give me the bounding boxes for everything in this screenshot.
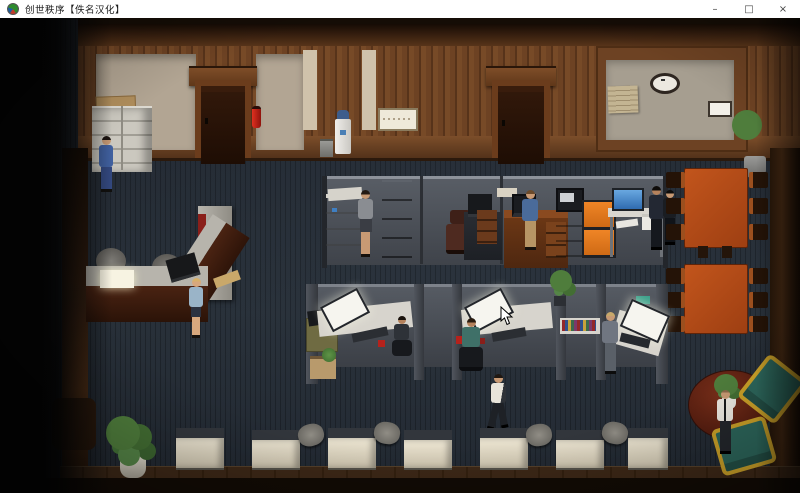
table2-chair-l1[interactable] bbox=[666, 268, 685, 284]
bottom-desk-top-2 bbox=[252, 430, 300, 440]
person-head bbox=[526, 190, 535, 199]
plant-topright bbox=[732, 110, 762, 140]
bottom-desk-4[interactable] bbox=[404, 440, 452, 470]
person-head bbox=[606, 312, 615, 321]
maximize-icon: □ bbox=[744, 4, 753, 15]
table1-chair-l2[interactable] bbox=[666, 198, 685, 214]
crown-molding bbox=[78, 24, 800, 46]
table1-chair-r2[interactable] bbox=[749, 198, 768, 214]
dark-file-cabinet[interactable] bbox=[382, 180, 412, 260]
wall-pilaster-2 bbox=[362, 50, 376, 130]
wall-sign[interactable] bbox=[708, 101, 732, 117]
title-bar: 创世秩序【佚名汉化】 – □ × bbox=[0, 0, 800, 18]
partition-divider-1 bbox=[420, 176, 423, 264]
person-gray-suit[interactable] bbox=[598, 312, 622, 376]
table1-endchair-2 bbox=[722, 246, 732, 258]
clock-hands bbox=[661, 79, 665, 81]
table1-chair-l3[interactable] bbox=[666, 224, 685, 240]
person-head bbox=[361, 190, 370, 199]
bottom-desk-top-4 bbox=[404, 430, 452, 440]
bottom-desk-3[interactable] bbox=[328, 438, 376, 470]
door-right-handle[interactable] bbox=[502, 120, 505, 126]
bottom-desk-top-5 bbox=[480, 428, 528, 438]
person-head bbox=[721, 390, 730, 399]
meeting-table-2[interactable] bbox=[684, 264, 748, 334]
bottom-chair-3[interactable] bbox=[525, 422, 554, 447]
wood-drawer-cabinet bbox=[477, 210, 497, 244]
person-leg-right bbox=[496, 403, 508, 429]
table2-chair-l2[interactable] bbox=[666, 292, 685, 308]
person-legs bbox=[101, 167, 112, 192]
wall-clock[interactable] bbox=[650, 73, 680, 94]
person-torso bbox=[717, 399, 733, 421]
photocopier-display bbox=[332, 208, 337, 212]
bottom-desk-1[interactable] bbox=[176, 438, 224, 470]
notice-board[interactable] bbox=[378, 108, 418, 131]
bottom-desk-top-7 bbox=[628, 428, 668, 438]
person-chair bbox=[459, 347, 483, 371]
person-torso bbox=[462, 327, 480, 347]
person-torso bbox=[394, 324, 409, 340]
partition-plant bbox=[550, 270, 572, 292]
bottom-desk-7[interactable] bbox=[628, 438, 668, 470]
wall-map[interactable] bbox=[608, 85, 639, 113]
plant-pot-bottomleft bbox=[120, 456, 146, 478]
table2-chair-r3[interactable] bbox=[749, 316, 768, 332]
person-head bbox=[467, 318, 476, 327]
door-left[interactable] bbox=[201, 86, 245, 164]
person-sitting-teal[interactable] bbox=[454, 318, 488, 376]
table1-chair-r3[interactable] bbox=[749, 224, 768, 240]
table2-chair-r2[interactable] bbox=[749, 292, 768, 308]
person-legs bbox=[361, 232, 370, 257]
person-torso bbox=[602, 321, 618, 343]
meeting-table-1[interactable] bbox=[684, 168, 748, 248]
person-torso bbox=[522, 199, 538, 221]
dark-armchair-corner bbox=[52, 398, 96, 450]
person-blonde-visitor[interactable] bbox=[184, 278, 208, 338]
table1-endchair-1 bbox=[698, 246, 708, 258]
person-head bbox=[494, 374, 503, 383]
wall-section-beige-mid bbox=[256, 54, 304, 150]
bottom-desk-6[interactable] bbox=[556, 440, 604, 470]
person-torso bbox=[99, 145, 113, 167]
table1-chair-l1[interactable] bbox=[666, 172, 685, 188]
table1-chair-r1[interactable] bbox=[749, 172, 768, 188]
person-legs bbox=[605, 343, 616, 374]
books-row bbox=[562, 320, 596, 331]
app-window: 创世秩序【佚名汉化】 – □ × bbox=[0, 0, 800, 493]
close-icon: × bbox=[779, 4, 787, 15]
wall-pilaster-1 bbox=[303, 50, 317, 130]
bottom-desk-top-6 bbox=[556, 430, 604, 440]
file-cabinet-divider bbox=[121, 106, 123, 170]
person-walking[interactable] bbox=[486, 374, 510, 430]
desk-plant-bayA bbox=[322, 348, 336, 362]
person-head bbox=[102, 136, 111, 145]
reception-paper[interactable] bbox=[100, 270, 134, 288]
water-cooler-label bbox=[340, 130, 346, 135]
red-mug-bayA bbox=[378, 340, 385, 347]
person-copier-woman[interactable] bbox=[352, 190, 378, 260]
bottom-desk-2[interactable] bbox=[252, 440, 300, 470]
bottom-desk-5[interactable] bbox=[480, 438, 528, 470]
white-desk-leg-l bbox=[610, 217, 613, 257]
game-viewport[interactable] bbox=[0, 18, 800, 493]
person-head bbox=[192, 278, 201, 287]
plant-bottomleft bbox=[106, 416, 140, 450]
window-title: 创世秩序【佚名汉化】 bbox=[25, 2, 125, 16]
minimize-button[interactable]: – bbox=[698, 0, 732, 18]
blue-monitor bbox=[612, 188, 644, 211]
person-shirt-tie[interactable] bbox=[712, 390, 738, 456]
mouse-cursor bbox=[500, 306, 514, 326]
person-skirt bbox=[360, 219, 372, 232]
app-icon bbox=[7, 3, 19, 15]
pedestal-monitor-screen bbox=[560, 193, 574, 202]
partition-plant-pot bbox=[554, 296, 566, 306]
person-skirt bbox=[191, 307, 201, 317]
maximize-button[interactable]: □ bbox=[732, 0, 766, 18]
close-button[interactable]: × bbox=[766, 0, 800, 18]
bottom-desk-top-3 bbox=[328, 428, 376, 438]
door-left-handle[interactable] bbox=[205, 118, 208, 124]
person-head bbox=[398, 316, 406, 324]
person-sitting-bayA[interactable] bbox=[388, 316, 416, 360]
bottom-chair-1[interactable] bbox=[296, 421, 327, 449]
fire-extinguisher[interactable] bbox=[252, 106, 261, 128]
person-legs bbox=[525, 221, 536, 250]
minimize-icon: – bbox=[713, 4, 718, 15]
water-cooler[interactable] bbox=[335, 119, 351, 154]
trash-can[interactable] bbox=[320, 139, 333, 157]
person-head bbox=[666, 190, 674, 198]
bottom-dark-band bbox=[0, 478, 800, 493]
silver-pedestal bbox=[556, 212, 582, 258]
person-desk-worker[interactable] bbox=[517, 190, 543, 262]
bottom-chair-4[interactable] bbox=[600, 420, 630, 447]
bottom-desk-top-1 bbox=[176, 428, 224, 438]
person-blue-suit[interactable] bbox=[95, 136, 117, 192]
person-legs bbox=[720, 421, 731, 454]
table2-chair-r1[interactable] bbox=[749, 268, 768, 284]
bottom-chair-2[interactable] bbox=[372, 420, 401, 446]
person-legs bbox=[192, 317, 200, 338]
person-chair bbox=[392, 340, 412, 356]
person-torso bbox=[491, 383, 506, 403]
person-torso bbox=[189, 287, 203, 307]
right-wall-strip bbox=[770, 148, 800, 493]
person-torso bbox=[358, 199, 373, 219]
